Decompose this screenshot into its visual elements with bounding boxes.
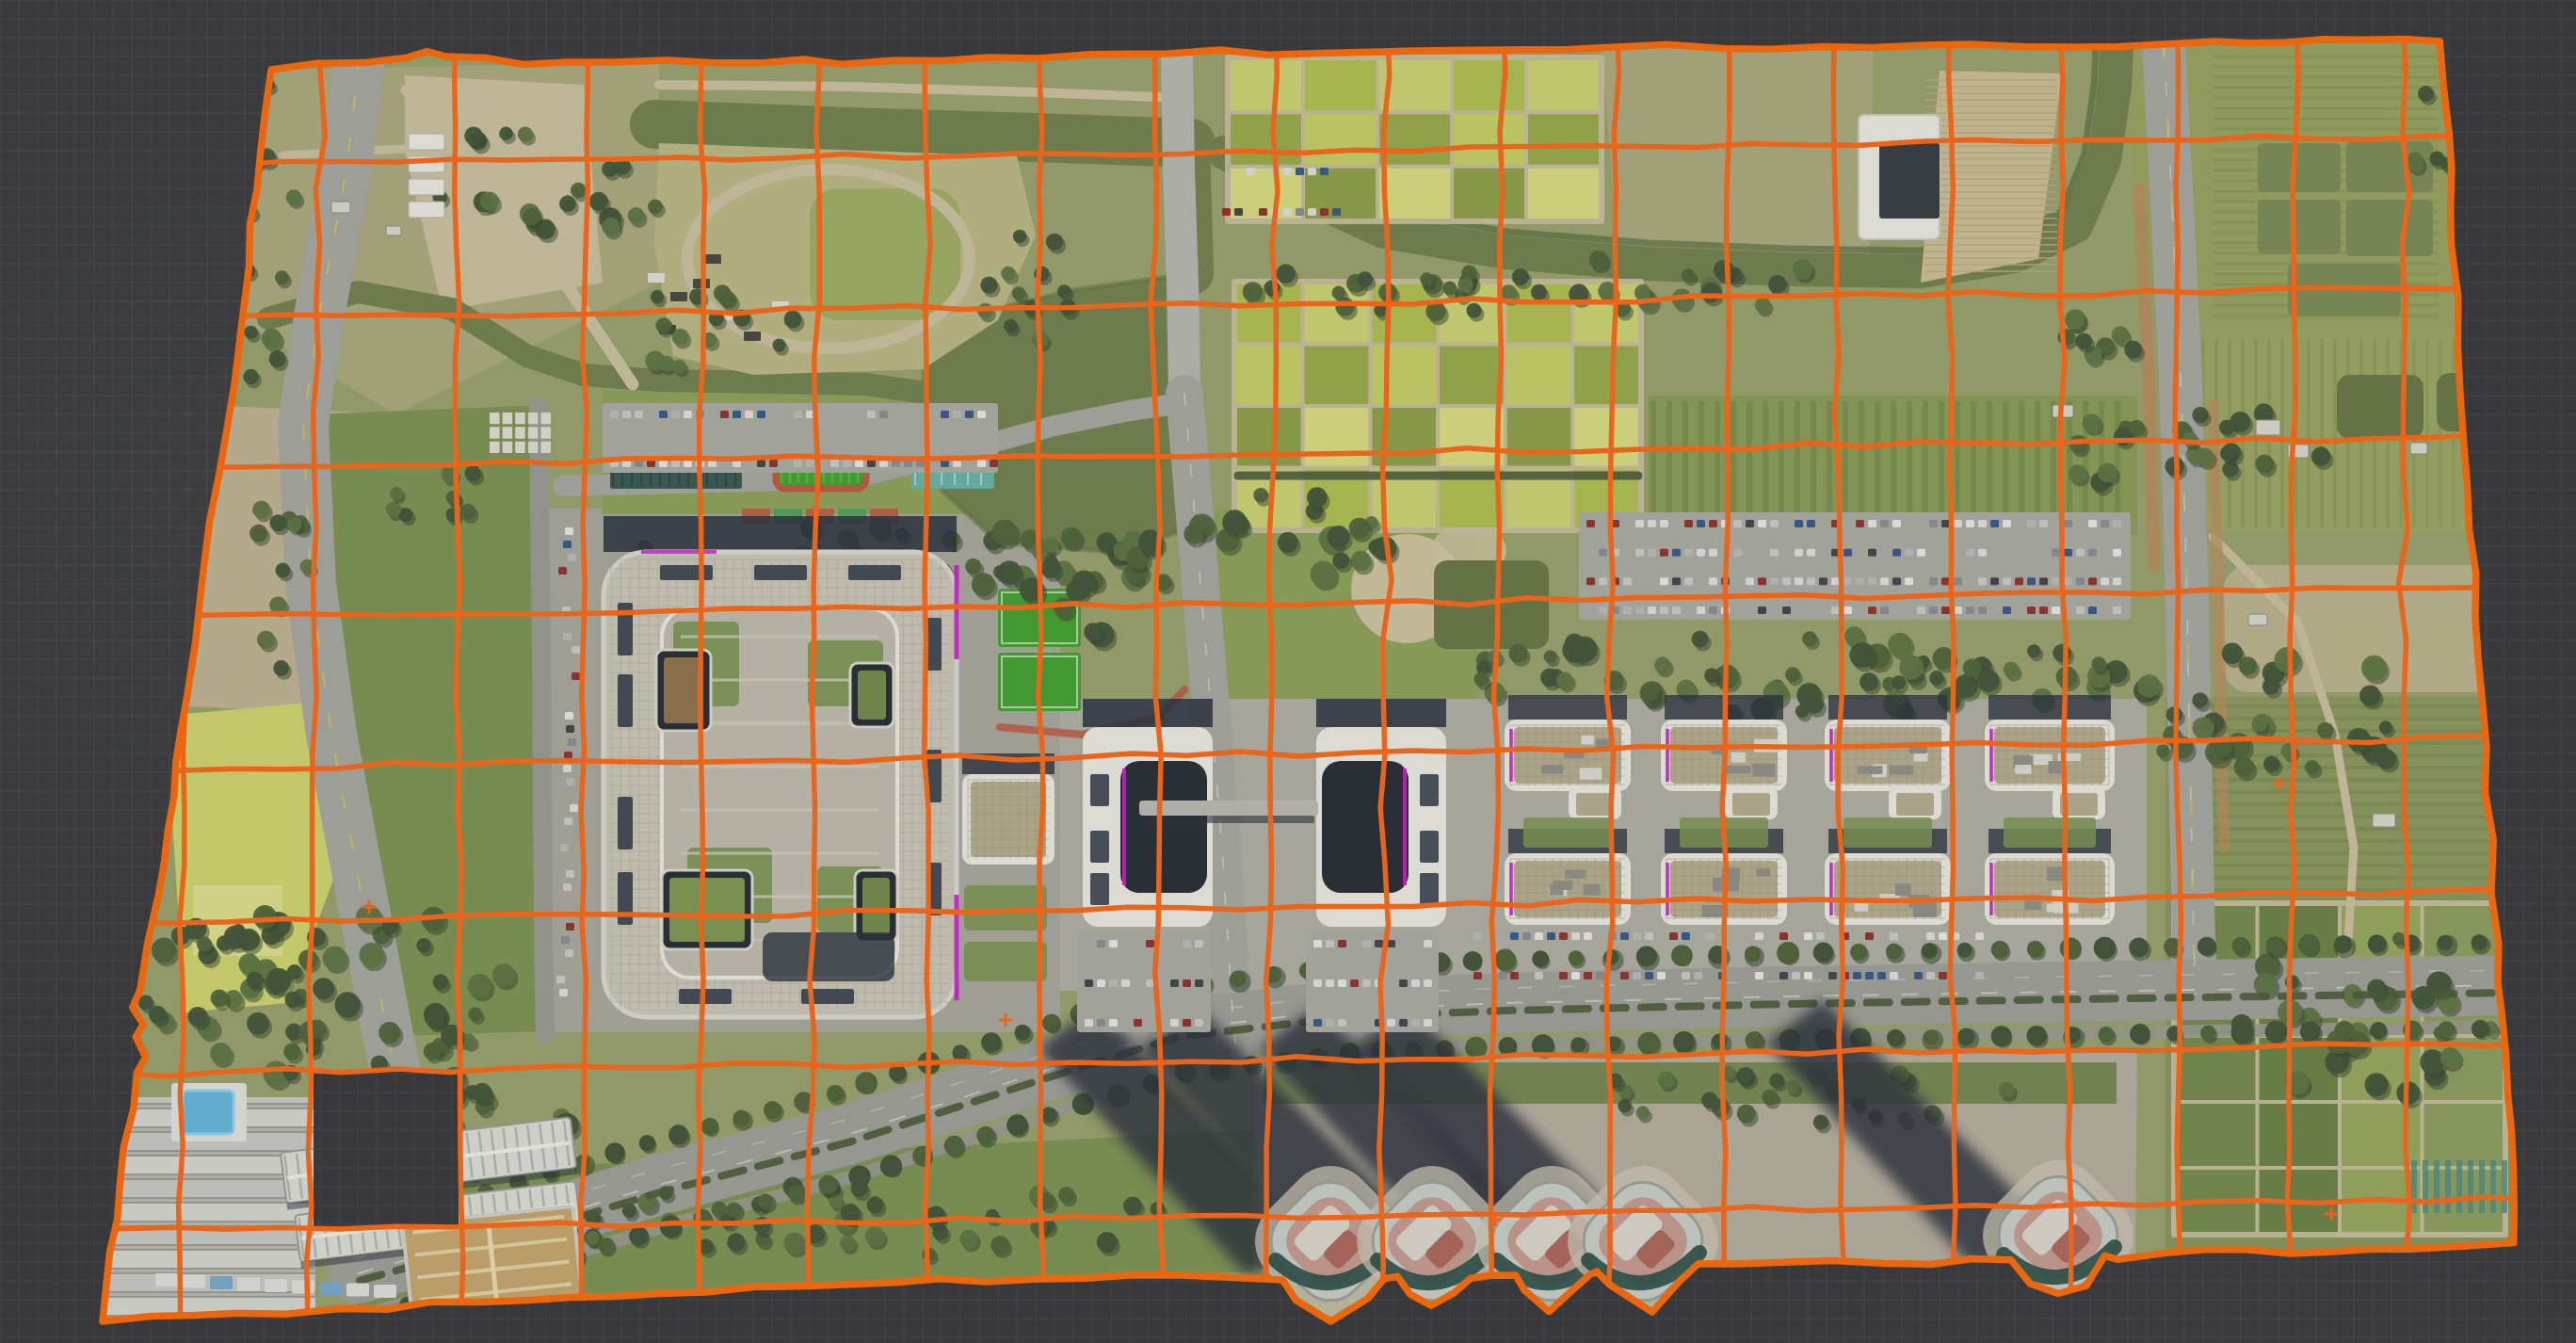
tileset-scene-canvas[interactable] <box>0 0 2576 1343</box>
3d-viewport[interactable] <box>0 0 2576 1343</box>
missing-tile <box>314 1071 459 1227</box>
